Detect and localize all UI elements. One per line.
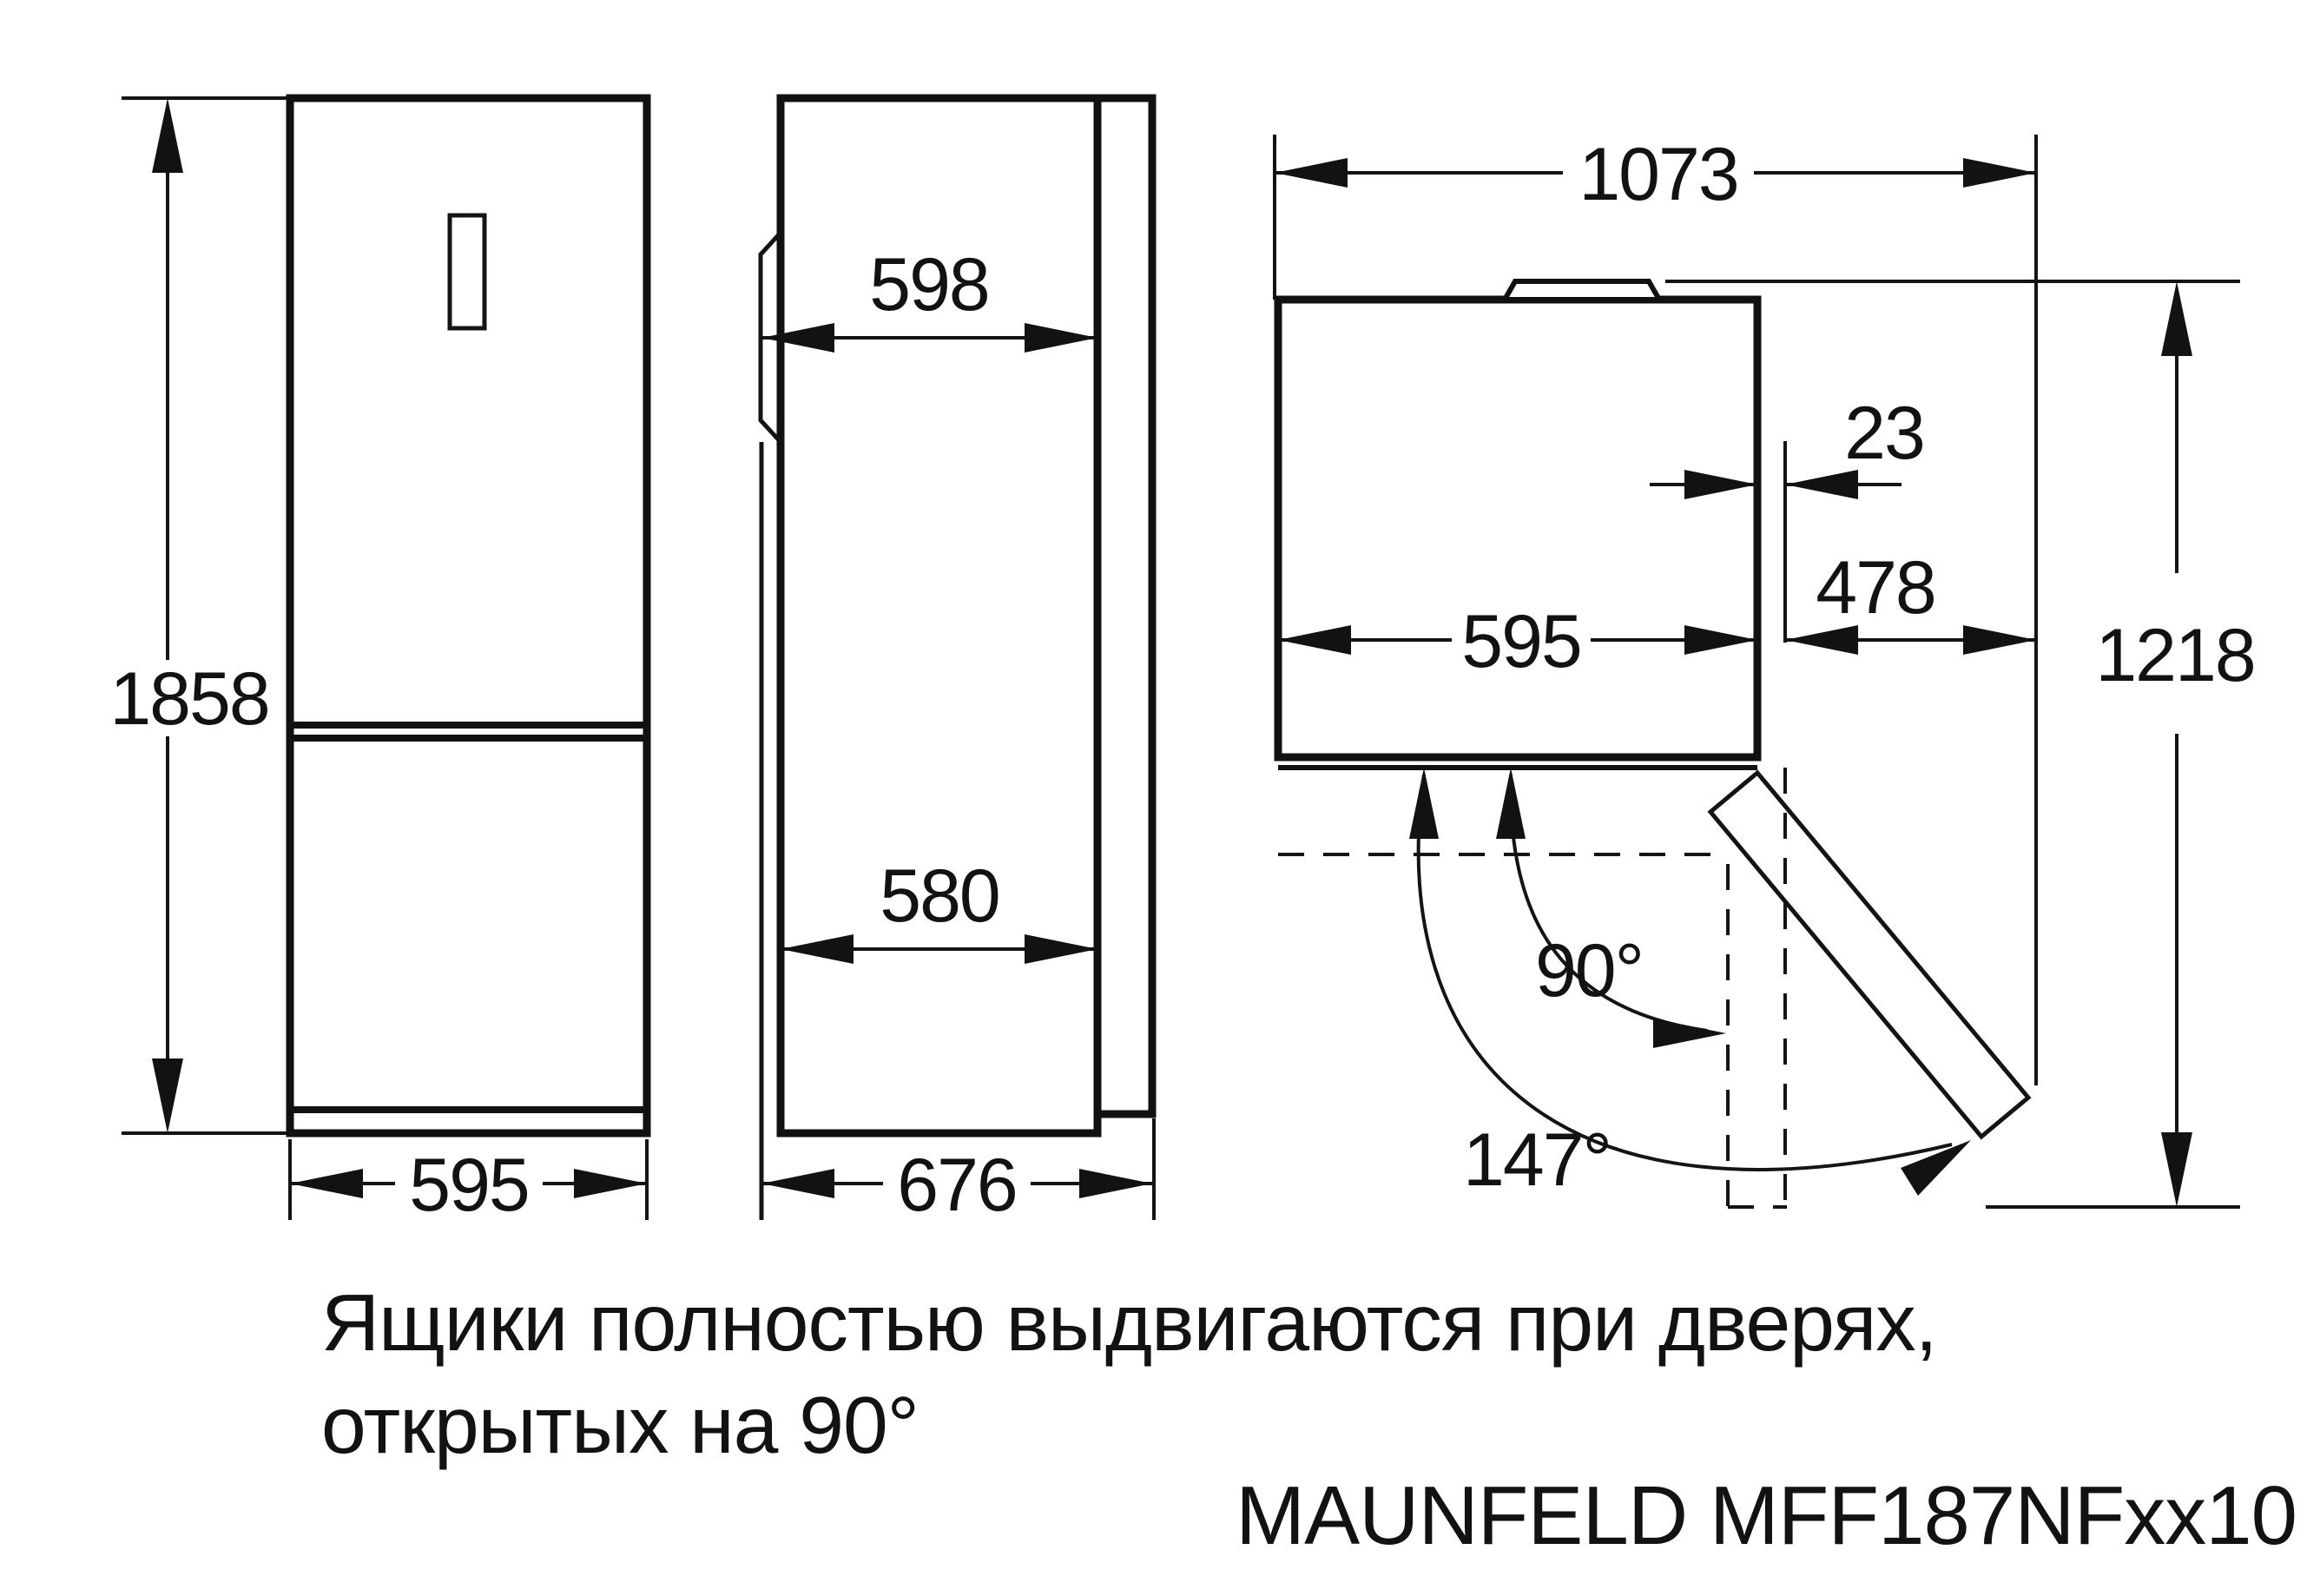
front-view: 1858 595 — [109, 98, 647, 1227]
side-view: 598 580 676 — [761, 98, 1154, 1227]
angle-label-147: 147° — [1463, 1118, 1611, 1202]
arrow-left-icon — [290, 1169, 363, 1198]
dim-label-top-width: 595 — [1461, 600, 1581, 683]
caption: Ящики полностью выдвигаются при дверях, … — [321, 1277, 2297, 1562]
model-label: MAUNFELD MFF187NFxx10 — [1236, 1469, 2297, 1562]
dim-label-door-depth: 598 — [869, 243, 989, 326]
dim-label-height: 1858 — [109, 657, 268, 741]
open-door-147 — [1710, 773, 2028, 1137]
dim-label-total-depth: 676 — [897, 1144, 1017, 1227]
arrow-down-icon — [2161, 1132, 2192, 1207]
dim-label-open-depth: 1218 — [2095, 614, 2254, 697]
drawing-page: 1858 595 598 580 — [0, 0, 2320, 1596]
arrow-left-icon — [761, 1169, 834, 1198]
arrow-right-icon — [1079, 1169, 1152, 1198]
hinge-cap — [1505, 281, 1659, 300]
dim-label-door-width: 478 — [1816, 546, 1935, 630]
arrow-up-icon — [1409, 768, 1439, 839]
top-cabinet-outline — [1278, 300, 1757, 757]
arrow-right-icon — [574, 1169, 647, 1198]
arrow-up-icon — [2161, 281, 2192, 356]
caption-line-1: Ящики полностью выдвигаются при дверях, — [321, 1277, 1937, 1368]
arrow-left-icon — [1785, 625, 1858, 655]
dim-label-width: 595 — [409, 1144, 529, 1227]
arrow-right-icon — [1653, 1019, 1726, 1048]
angle-label-90: 90° — [1535, 929, 1643, 1012]
dim-label-open-width: 1073 — [1579, 133, 1737, 216]
arrow-down-icon — [152, 1059, 183, 1133]
dim-label-body-depth: 580 — [880, 854, 999, 938]
top-view: 1073 23 595 478 1218 — [1275, 133, 2255, 1207]
dimension-diagram: 1858 595 598 580 — [0, 0, 2320, 1596]
arrow-right-icon — [1963, 158, 2036, 188]
arrow-up-icon — [1496, 768, 1526, 839]
rear-spacer-strip — [1097, 98, 1152, 1114]
arrow-right-icon — [1963, 625, 2036, 655]
dim-label-clearance: 23 — [1844, 392, 1924, 475]
caption-line-2: открытых на 90° — [321, 1380, 919, 1470]
arrow-left-icon — [1275, 158, 1348, 188]
front-cabinet-outline — [290, 98, 647, 1133]
arrow-up-icon — [152, 98, 183, 173]
